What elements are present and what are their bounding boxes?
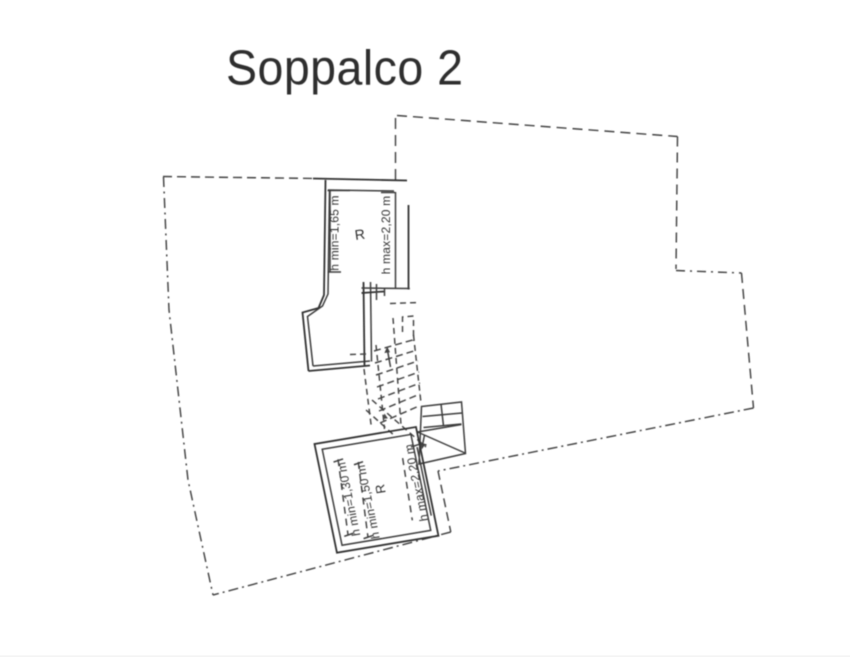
svg-text:h min=1,65 m: h min=1,65 m	[328, 195, 342, 270]
svg-text:Soppalco 2: Soppalco 2	[226, 41, 463, 96]
svg-text:h max=2,20 m: h max=2,20 m	[379, 196, 393, 275]
